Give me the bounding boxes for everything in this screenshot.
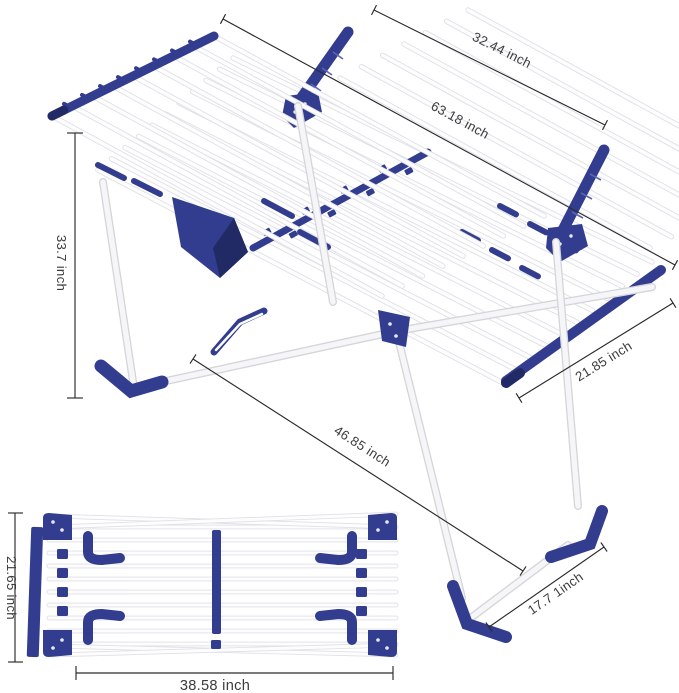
screw-dot xyxy=(569,234,572,237)
left-wing-rail-cap xyxy=(52,110,64,116)
right-wing-rod xyxy=(361,67,671,237)
rod-sleeve-clip xyxy=(492,250,508,258)
corner-bracket-bl xyxy=(43,630,72,657)
folded-foot-br xyxy=(320,614,352,640)
dimension-label: 21.85 inch xyxy=(573,338,635,384)
dimension-label: 38.58 inch xyxy=(180,678,250,693)
folded-spine-hinge xyxy=(211,640,221,649)
folded-wing-rail xyxy=(27,527,44,657)
folded-clip xyxy=(57,587,68,597)
right-wing-rod xyxy=(383,55,679,225)
folded-clip xyxy=(57,606,68,616)
folded-foot-bl xyxy=(88,614,120,640)
dimension-diagram: 32.44 inch 63.18 inch 33.7 inch 21.85 in… xyxy=(0,0,679,693)
dimension-label: 46.85 inch xyxy=(332,423,394,470)
open-rack-view xyxy=(52,10,679,637)
diagram-canvas: 32.44 inch 63.18 inch 33.7 inch 21.85 in… xyxy=(0,0,679,693)
folded-clip xyxy=(57,568,68,578)
folded-clip xyxy=(356,549,367,559)
dimension-diagonal-length: 46.85 inch xyxy=(190,354,526,575)
screw-dot xyxy=(388,322,392,326)
right-front-foot xyxy=(551,511,602,557)
dimension-label: 21.65 inch xyxy=(4,556,19,620)
corner-bracket-tl xyxy=(43,513,72,540)
folded-clip xyxy=(356,568,367,578)
folded-clip xyxy=(356,587,367,597)
right-rear-leg xyxy=(398,338,462,598)
dimension-folded-width: 21.65 inch xyxy=(4,513,23,662)
fold-hinge-bracket xyxy=(378,310,410,347)
dimension-label: 33.7 inch xyxy=(54,235,69,291)
corner-bracket-br xyxy=(368,630,397,657)
folded-rack-view xyxy=(27,513,397,657)
screw-dot xyxy=(394,334,398,338)
folded-rods xyxy=(49,527,396,644)
left-rear-leg xyxy=(103,182,134,388)
left-front-leg xyxy=(134,331,397,388)
folded-clip xyxy=(356,606,367,616)
dimension-open-height: 33.7 inch xyxy=(54,133,83,398)
dimension-label: 63.18 inch xyxy=(429,98,492,142)
dimension-folded-length: 38.58 inch xyxy=(76,666,393,693)
folded-clip xyxy=(57,549,68,559)
folded-cross-rods xyxy=(52,514,396,655)
dimension-label: 17.7 1inch xyxy=(525,569,586,618)
corner-bracket-tr xyxy=(368,513,397,540)
folded-center-spine xyxy=(212,530,221,634)
